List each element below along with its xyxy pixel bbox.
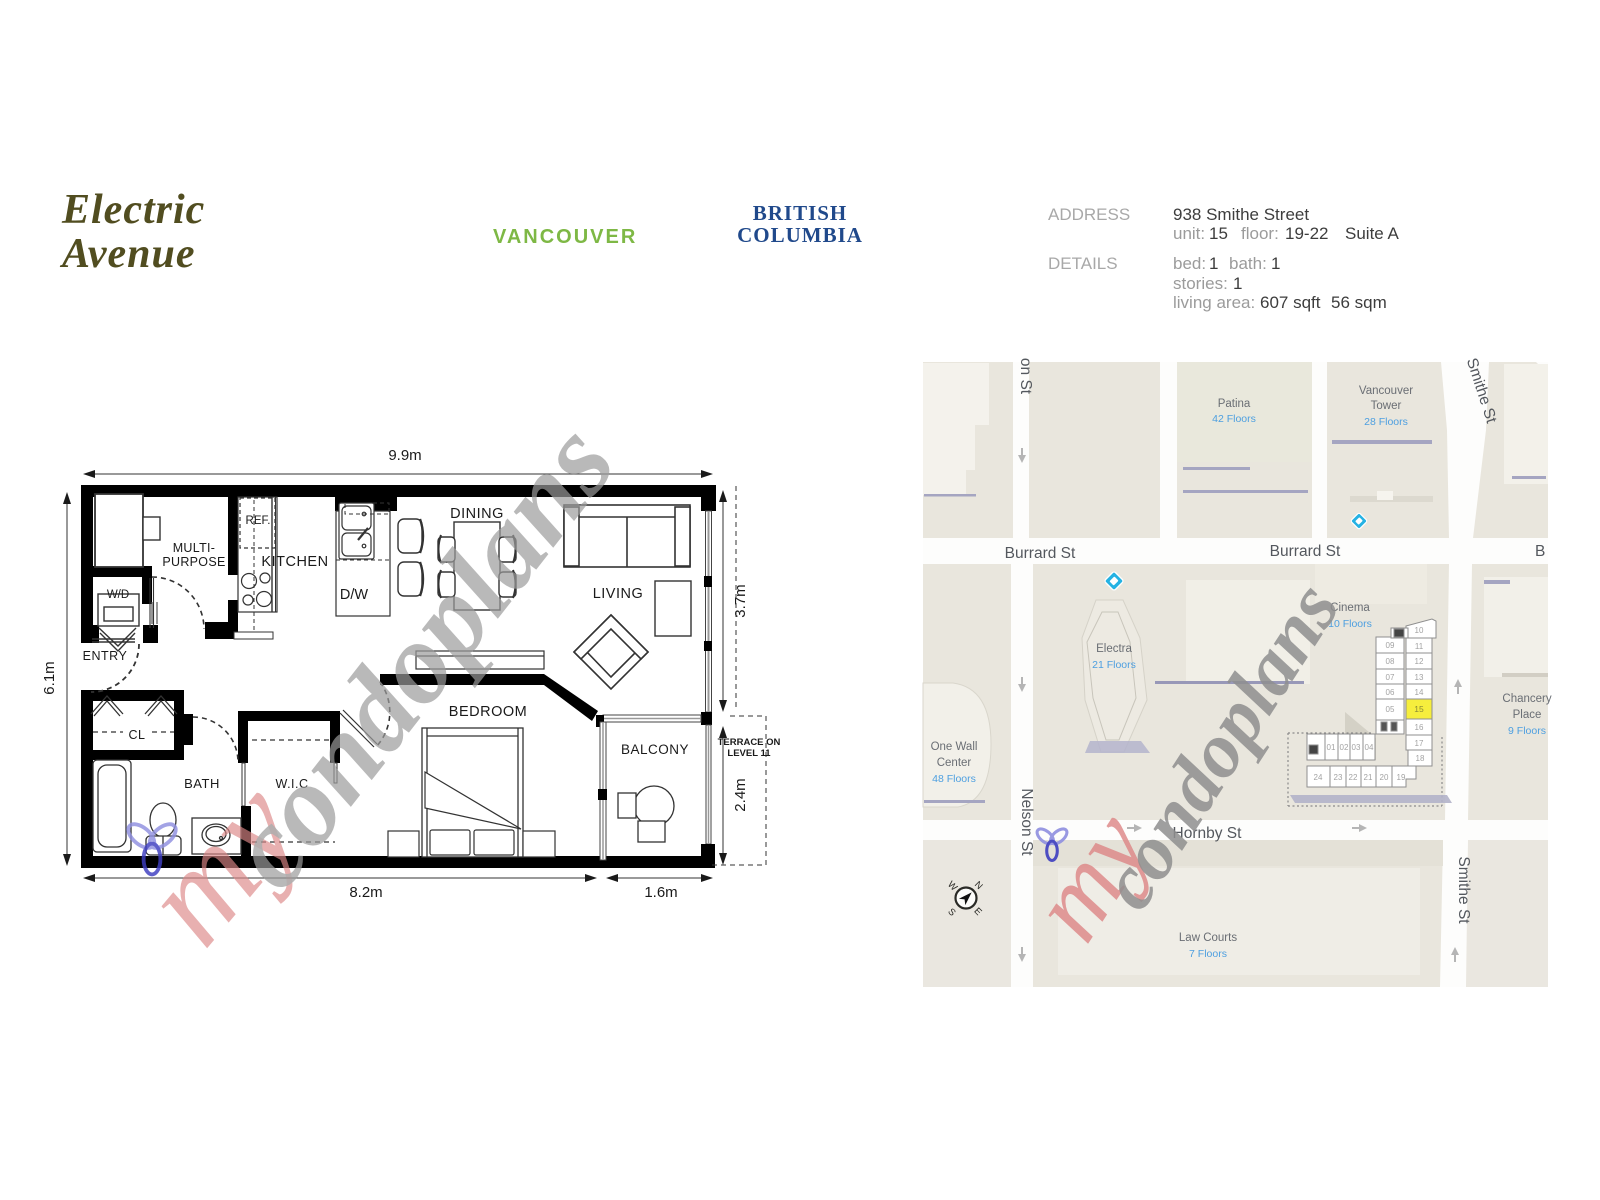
svg-text:48 Floors: 48 Floors [932, 773, 976, 785]
svg-text:CL: CL [129, 728, 146, 742]
svg-text:Patina: Patina [1218, 398, 1251, 410]
svg-text:BALCONY: BALCONY [621, 742, 689, 757]
svg-text:1.6m: 1.6m [644, 884, 677, 901]
svg-text:42 Floors: 42 Floors [1212, 413, 1256, 425]
svg-text:17: 17 [1415, 739, 1424, 748]
svg-text:03: 03 [1352, 743, 1361, 752]
svg-text:12: 12 [1415, 657, 1424, 666]
svg-text:TERRACE ON: TERRACE ON [718, 737, 781, 748]
svg-text:Smithe St: Smithe St [1455, 856, 1472, 924]
svg-text:Vancouver: Vancouver [1359, 385, 1413, 397]
svg-text:06: 06 [1386, 688, 1395, 697]
svg-text:18: 18 [1416, 754, 1425, 763]
svg-text:Electra: Electra [1096, 643, 1132, 655]
svg-text:COLUMBIA: COLUMBIA [737, 223, 863, 247]
svg-text:938 Smithe Street: 938 Smithe Street [1173, 205, 1309, 224]
svg-text:01: 01 [1327, 743, 1336, 752]
svg-text:ENTRY: ENTRY [83, 649, 128, 663]
svg-text:05: 05 [1386, 705, 1395, 714]
svg-text:10: 10 [1415, 626, 1424, 635]
svg-text:3.7m: 3.7m [732, 584, 749, 617]
svg-text:21 Floors: 21 Floors [1092, 659, 1136, 671]
svg-text:Avenue: Avenue [59, 231, 196, 277]
svg-text:09: 09 [1386, 641, 1395, 650]
svg-text:21: 21 [1364, 773, 1373, 782]
svg-text:KITCHEN: KITCHEN [261, 554, 328, 570]
svg-text:11: 11 [1415, 642, 1424, 651]
svg-text:on St: on St [1017, 358, 1034, 395]
svg-text:14: 14 [1415, 688, 1424, 697]
svg-text:15: 15 [1414, 704, 1424, 714]
svg-text:19: 19 [1397, 773, 1406, 782]
svg-text:28 Floors: 28 Floors [1364, 416, 1408, 428]
svg-text:D/W: D/W [340, 587, 369, 603]
svg-text:Burrard St: Burrard St [1005, 545, 1076, 562]
svg-text:13: 13 [1415, 673, 1424, 682]
svg-text:Burrard St: Burrard St [1270, 543, 1341, 560]
svg-text:9 Floors: 9 Floors [1508, 725, 1546, 737]
svg-text:REF.: REF. [246, 515, 271, 527]
svg-text:16: 16 [1415, 723, 1424, 732]
svg-text:2.4m: 2.4m [732, 778, 749, 811]
svg-text:Place: Place [1513, 709, 1542, 721]
svg-text:One Wall: One Wall [931, 741, 978, 753]
svg-text:24: 24 [1314, 773, 1323, 782]
svg-text:7 Floors: 7 Floors [1189, 948, 1227, 960]
svg-text:9.9m: 9.9m [388, 447, 421, 464]
svg-text:04: 04 [1365, 743, 1374, 752]
svg-text:PURPOSE: PURPOSE [162, 555, 225, 569]
svg-text:23: 23 [1334, 773, 1343, 782]
svg-text:02: 02 [1340, 743, 1349, 752]
svg-text:Tower: Tower [1371, 400, 1402, 412]
svg-text:stories:1: stories:1 [1173, 274, 1242, 293]
svg-text:Chancery: Chancery [1502, 693, 1551, 705]
svg-text:ADDRESS: ADDRESS [1048, 205, 1130, 224]
svg-text:VANCOUVER: VANCOUVER [493, 226, 637, 248]
svg-text:B: B [1535, 543, 1545, 560]
svg-text:Electric: Electric [61, 187, 205, 233]
svg-text:Center: Center [937, 757, 972, 769]
svg-text:living area:607 sqft56 sqm: living area:607 sqft56 sqm [1173, 293, 1387, 312]
svg-text:8.2m: 8.2m [349, 884, 382, 901]
svg-text:Law Courts: Law Courts [1179, 932, 1237, 944]
svg-text:LIVING: LIVING [593, 586, 644, 602]
svg-text:Nelson St: Nelson St [1018, 788, 1035, 856]
svg-text:W/D: W/D [107, 589, 129, 601]
svg-text:08: 08 [1386, 657, 1395, 666]
svg-text:20: 20 [1380, 773, 1389, 782]
svg-text:MULTI-: MULTI- [173, 541, 216, 555]
svg-text:22: 22 [1349, 773, 1358, 782]
svg-text:07: 07 [1386, 673, 1395, 682]
svg-text:6.1m: 6.1m [41, 661, 58, 694]
svg-text:BRITISH: BRITISH [753, 201, 848, 225]
svg-text:LEVEL 11: LEVEL 11 [727, 748, 771, 759]
svg-text:DETAILS: DETAILS [1048, 254, 1118, 273]
